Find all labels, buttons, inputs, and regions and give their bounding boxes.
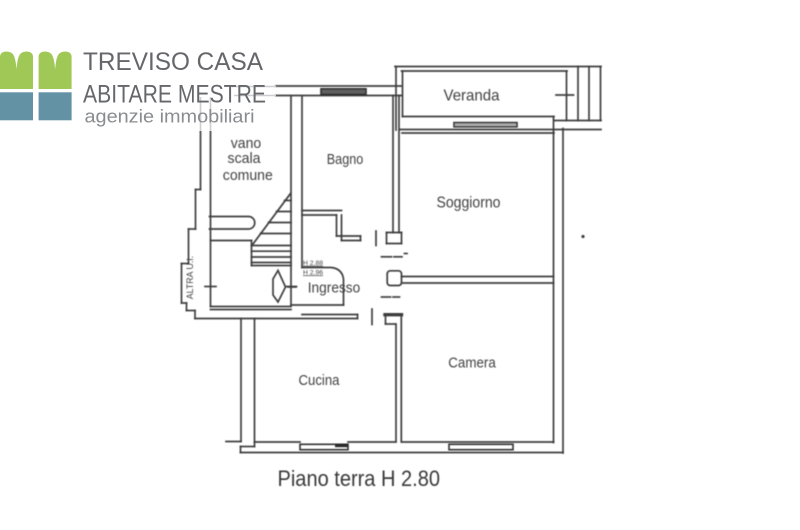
svg-text:Piano terra H 2.80: Piano terra H 2.80 (278, 466, 441, 491)
svg-text:Bagno: Bagno (327, 151, 364, 168)
svg-text:H 2.88: H 2.88 (303, 260, 323, 267)
svg-text:comune: comune (223, 167, 273, 184)
svg-text:Cucina: Cucina (299, 372, 341, 389)
svg-text:TREVISO CASA: TREVISO CASA (83, 48, 263, 76)
svg-text:Camera: Camera (448, 356, 496, 372)
svg-text:Soggiorno: Soggiorno (437, 195, 501, 212)
svg-text:ALTRA U.I.: ALTRA U.I. (185, 256, 195, 299)
svg-text:agenzie immobiliari: agenzie immobiliari (85, 106, 255, 127)
svg-text:scala: scala (228, 150, 262, 167)
svg-text:Ingresso: Ingresso (308, 280, 361, 297)
svg-text:H 2.96: H 2.96 (303, 269, 323, 276)
svg-text:Veranda: Veranda (444, 88, 500, 105)
svg-text:ABITARE MESTRE: ABITARE MESTRE (83, 81, 266, 109)
